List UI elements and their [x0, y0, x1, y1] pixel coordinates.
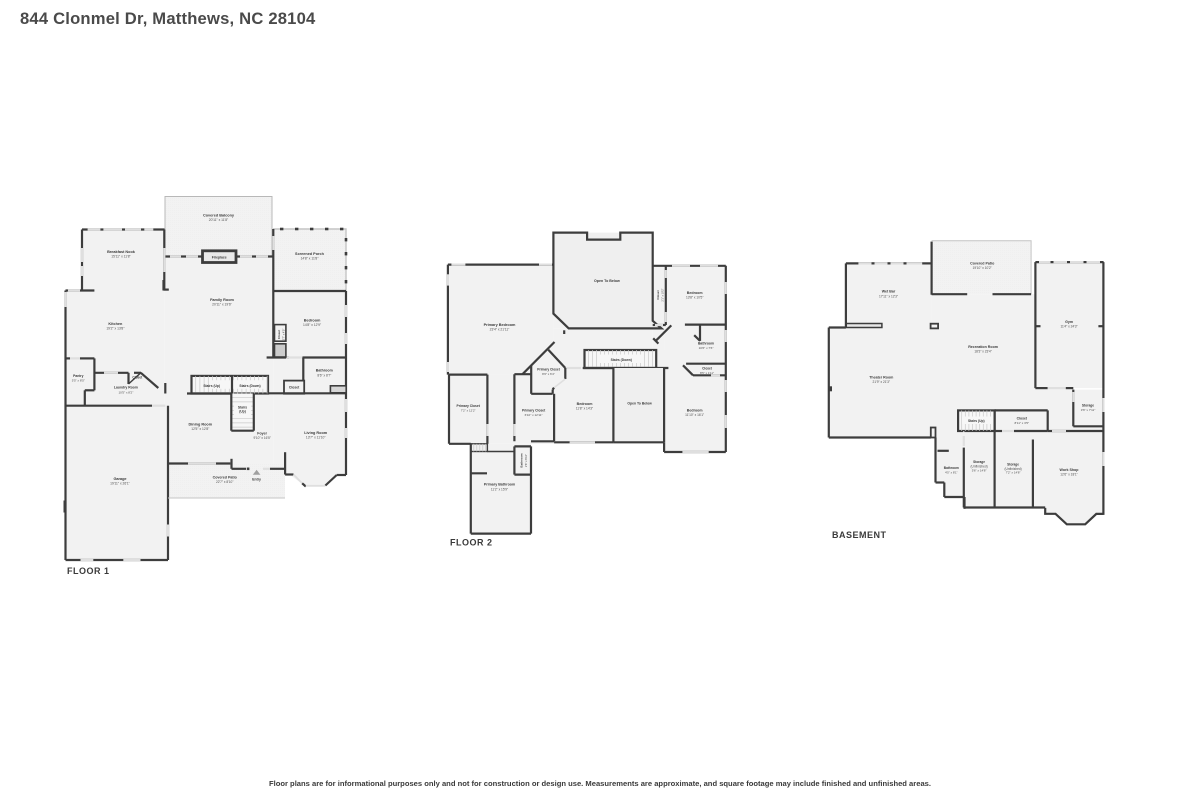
svg-text:3'6" x 7'11": 3'6" x 7'11"	[1081, 408, 1096, 412]
svg-text:11'2" x 15'9": 11'2" x 15'9"	[491, 487, 508, 491]
svg-text:Garage: Garage	[113, 477, 126, 481]
svg-text:8'11" x 3'5": 8'11" x 3'5"	[1015, 421, 1030, 425]
svg-text:Closet: Closet	[289, 385, 300, 389]
svg-text:5'5" x 8'5": 5'5" x 8'5"	[72, 379, 85, 383]
svg-text:13'7" x 11'10": 13'7" x 11'10"	[306, 436, 326, 440]
svg-text:(Up): (Up)	[239, 410, 246, 414]
svg-text:11'10" x 16'1": 11'10" x 16'1"	[685, 413, 704, 417]
svg-text:FLOOR 1: FLOOR 1	[67, 566, 110, 576]
svg-text:Bedroom: Bedroom	[687, 409, 703, 413]
svg-text:15'11" x 11'8": 15'11" x 11'8"	[111, 255, 131, 259]
svg-text:9'10" x 16'5": 9'10" x 16'5"	[253, 436, 270, 440]
svg-text:Primary Closet: Primary Closet	[537, 367, 560, 371]
svg-text:2'7" x 4'5": 2'7" x 4'5"	[281, 329, 285, 341]
svg-text:5'6" x 14'8": 5'6" x 14'8"	[972, 469, 987, 473]
svg-text:Closet: Closet	[656, 290, 660, 299]
svg-text:Covered Balcony: Covered Balcony	[203, 214, 235, 218]
svg-text:Primary Closet: Primary Closet	[457, 404, 481, 408]
svg-text:13'8" x 10'5": 13'8" x 10'5"	[686, 296, 703, 300]
svg-text:Dining Room: Dining Room	[188, 423, 212, 427]
svg-text:8'6" x 8'7": 8'6" x 8'7"	[317, 373, 331, 377]
svg-text:Work Shop: Work Shop	[1060, 468, 1080, 472]
svg-text:11'8" x 14'3": 11'8" x 14'3"	[576, 407, 593, 411]
svg-text:Storage: Storage	[1082, 404, 1094, 408]
svg-text:Bathroom: Bathroom	[520, 453, 524, 467]
svg-text:Bathroom: Bathroom	[944, 466, 959, 470]
svg-text:Pantry: Pantry	[73, 374, 83, 378]
svg-text:Primary Bedroom: Primary Bedroom	[484, 323, 516, 327]
svg-text:Foyer: Foyer	[257, 431, 267, 435]
svg-text:19'2" x 13'8": 19'2" x 13'8"	[106, 327, 125, 331]
svg-text:Theater Room: Theater Room	[869, 376, 893, 380]
svg-text:22'7" x 8'10": 22'7" x 8'10"	[216, 480, 233, 484]
svg-text:Screened Porch: Screened Porch	[295, 252, 325, 256]
svg-text:Bathroom: Bathroom	[698, 342, 714, 346]
svg-text:10'6" x 7'6": 10'6" x 7'6"	[699, 346, 714, 350]
svg-text:4'5" x 8'1": 4'5" x 8'1"	[945, 471, 958, 475]
svg-text:14'8" x 12'9": 14'8" x 12'9"	[303, 323, 322, 327]
svg-text:17'11" x 12'3": 17'11" x 12'3"	[879, 294, 898, 298]
svg-text:7'2" x 12'2": 7'2" x 12'2"	[461, 409, 476, 413]
svg-text:Primary Bathroom: Primary Bathroom	[484, 483, 515, 487]
svg-text:Closet: Closet	[132, 376, 143, 380]
svg-text:23'4" x 21'11": 23'4" x 21'11"	[490, 327, 510, 331]
svg-text:Storage: Storage	[973, 460, 985, 464]
svg-text:2'1" x 10'2": 2'1" x 10'2"	[660, 288, 664, 301]
svg-text:Covered Patio: Covered Patio	[213, 475, 238, 479]
svg-text:Recreation Room: Recreation Room	[968, 345, 998, 349]
svg-text:10'5" x 8'2": 10'5" x 8'2"	[119, 390, 134, 394]
svg-text:Breakfast Nook: Breakfast Nook	[107, 250, 136, 254]
svg-text:Open To Below: Open To Below	[627, 401, 652, 405]
svg-text:FLOOR 2: FLOOR 2	[450, 538, 493, 548]
svg-text:Closet: Closet	[702, 366, 713, 370]
svg-text:Stairs (Down): Stairs (Down)	[611, 358, 632, 362]
svg-text:Stairs (Up): Stairs (Up)	[203, 384, 220, 388]
svg-text:21'9" x 21'3": 21'9" x 21'3"	[873, 380, 890, 384]
svg-text:Closet: Closet	[1017, 416, 1028, 420]
svg-text:Family Room: Family Room	[210, 298, 234, 302]
svg-text:6'10" x 12'11": 6'10" x 12'11"	[525, 413, 543, 417]
svg-text:20'11" x 19'6": 20'11" x 19'6"	[212, 303, 232, 307]
svg-text:Stairs (Up): Stairs (Up)	[968, 419, 985, 423]
svg-text:Primary Closet: Primary Closet	[522, 409, 546, 413]
svg-text:Living Room: Living Room	[304, 431, 328, 435]
svg-text:Fireplace: Fireplace	[212, 256, 227, 260]
svg-text:Open To Below: Open To Below	[594, 279, 620, 283]
svg-text:12'5" x 12'8": 12'5" x 12'8"	[191, 427, 210, 431]
svg-text:12'6" x 18'1": 12'6" x 18'1"	[1060, 472, 1077, 476]
svg-text:7'2" x 14'8": 7'2" x 14'8"	[1006, 471, 1021, 475]
svg-text:19'10" x 10'2": 19'10" x 10'2"	[973, 266, 992, 270]
svg-text:Covered Patio: Covered Patio	[970, 262, 995, 266]
svg-text:19'11" x 26'1": 19'11" x 26'1"	[110, 482, 130, 486]
svg-text:20'11" x 11'8": 20'11" x 11'8"	[209, 218, 229, 222]
svg-text:Closet: Closet	[277, 330, 281, 339]
svg-text:Bedroom: Bedroom	[687, 291, 703, 295]
svg-text:8'5" x 1'11": 8'5" x 1'11"	[700, 371, 714, 375]
svg-text:Bedroom: Bedroom	[304, 318, 321, 322]
svg-text:Storage: Storage	[1007, 462, 1019, 466]
svg-text:8'6" x 6'4": 8'6" x 6'4"	[542, 372, 555, 376]
svg-text:Gym: Gym	[1065, 320, 1073, 324]
svg-text:18'3" x 23'4": 18'3" x 23'4"	[974, 350, 991, 354]
svg-text:Wet Bar: Wet Bar	[882, 290, 896, 294]
svg-text:BASEMENT: BASEMENT	[832, 530, 887, 540]
svg-text:Laundry Room: Laundry Room	[114, 386, 138, 390]
svg-text:Stairs (Down): Stairs (Down)	[239, 384, 260, 388]
svg-text:11'4" x 24'3": 11'4" x 24'3"	[1060, 325, 1077, 329]
svg-text:Kitchen: Kitchen	[108, 322, 123, 326]
svg-text:Bedroom: Bedroom	[577, 402, 593, 406]
svg-text:Entry: Entry	[252, 477, 261, 481]
svg-text:Bathroom: Bathroom	[316, 369, 333, 373]
svg-text:14'8" x 11'8": 14'8" x 11'8"	[301, 257, 320, 261]
svg-text:2'8" x 6'10": 2'8" x 6'10"	[524, 454, 528, 467]
